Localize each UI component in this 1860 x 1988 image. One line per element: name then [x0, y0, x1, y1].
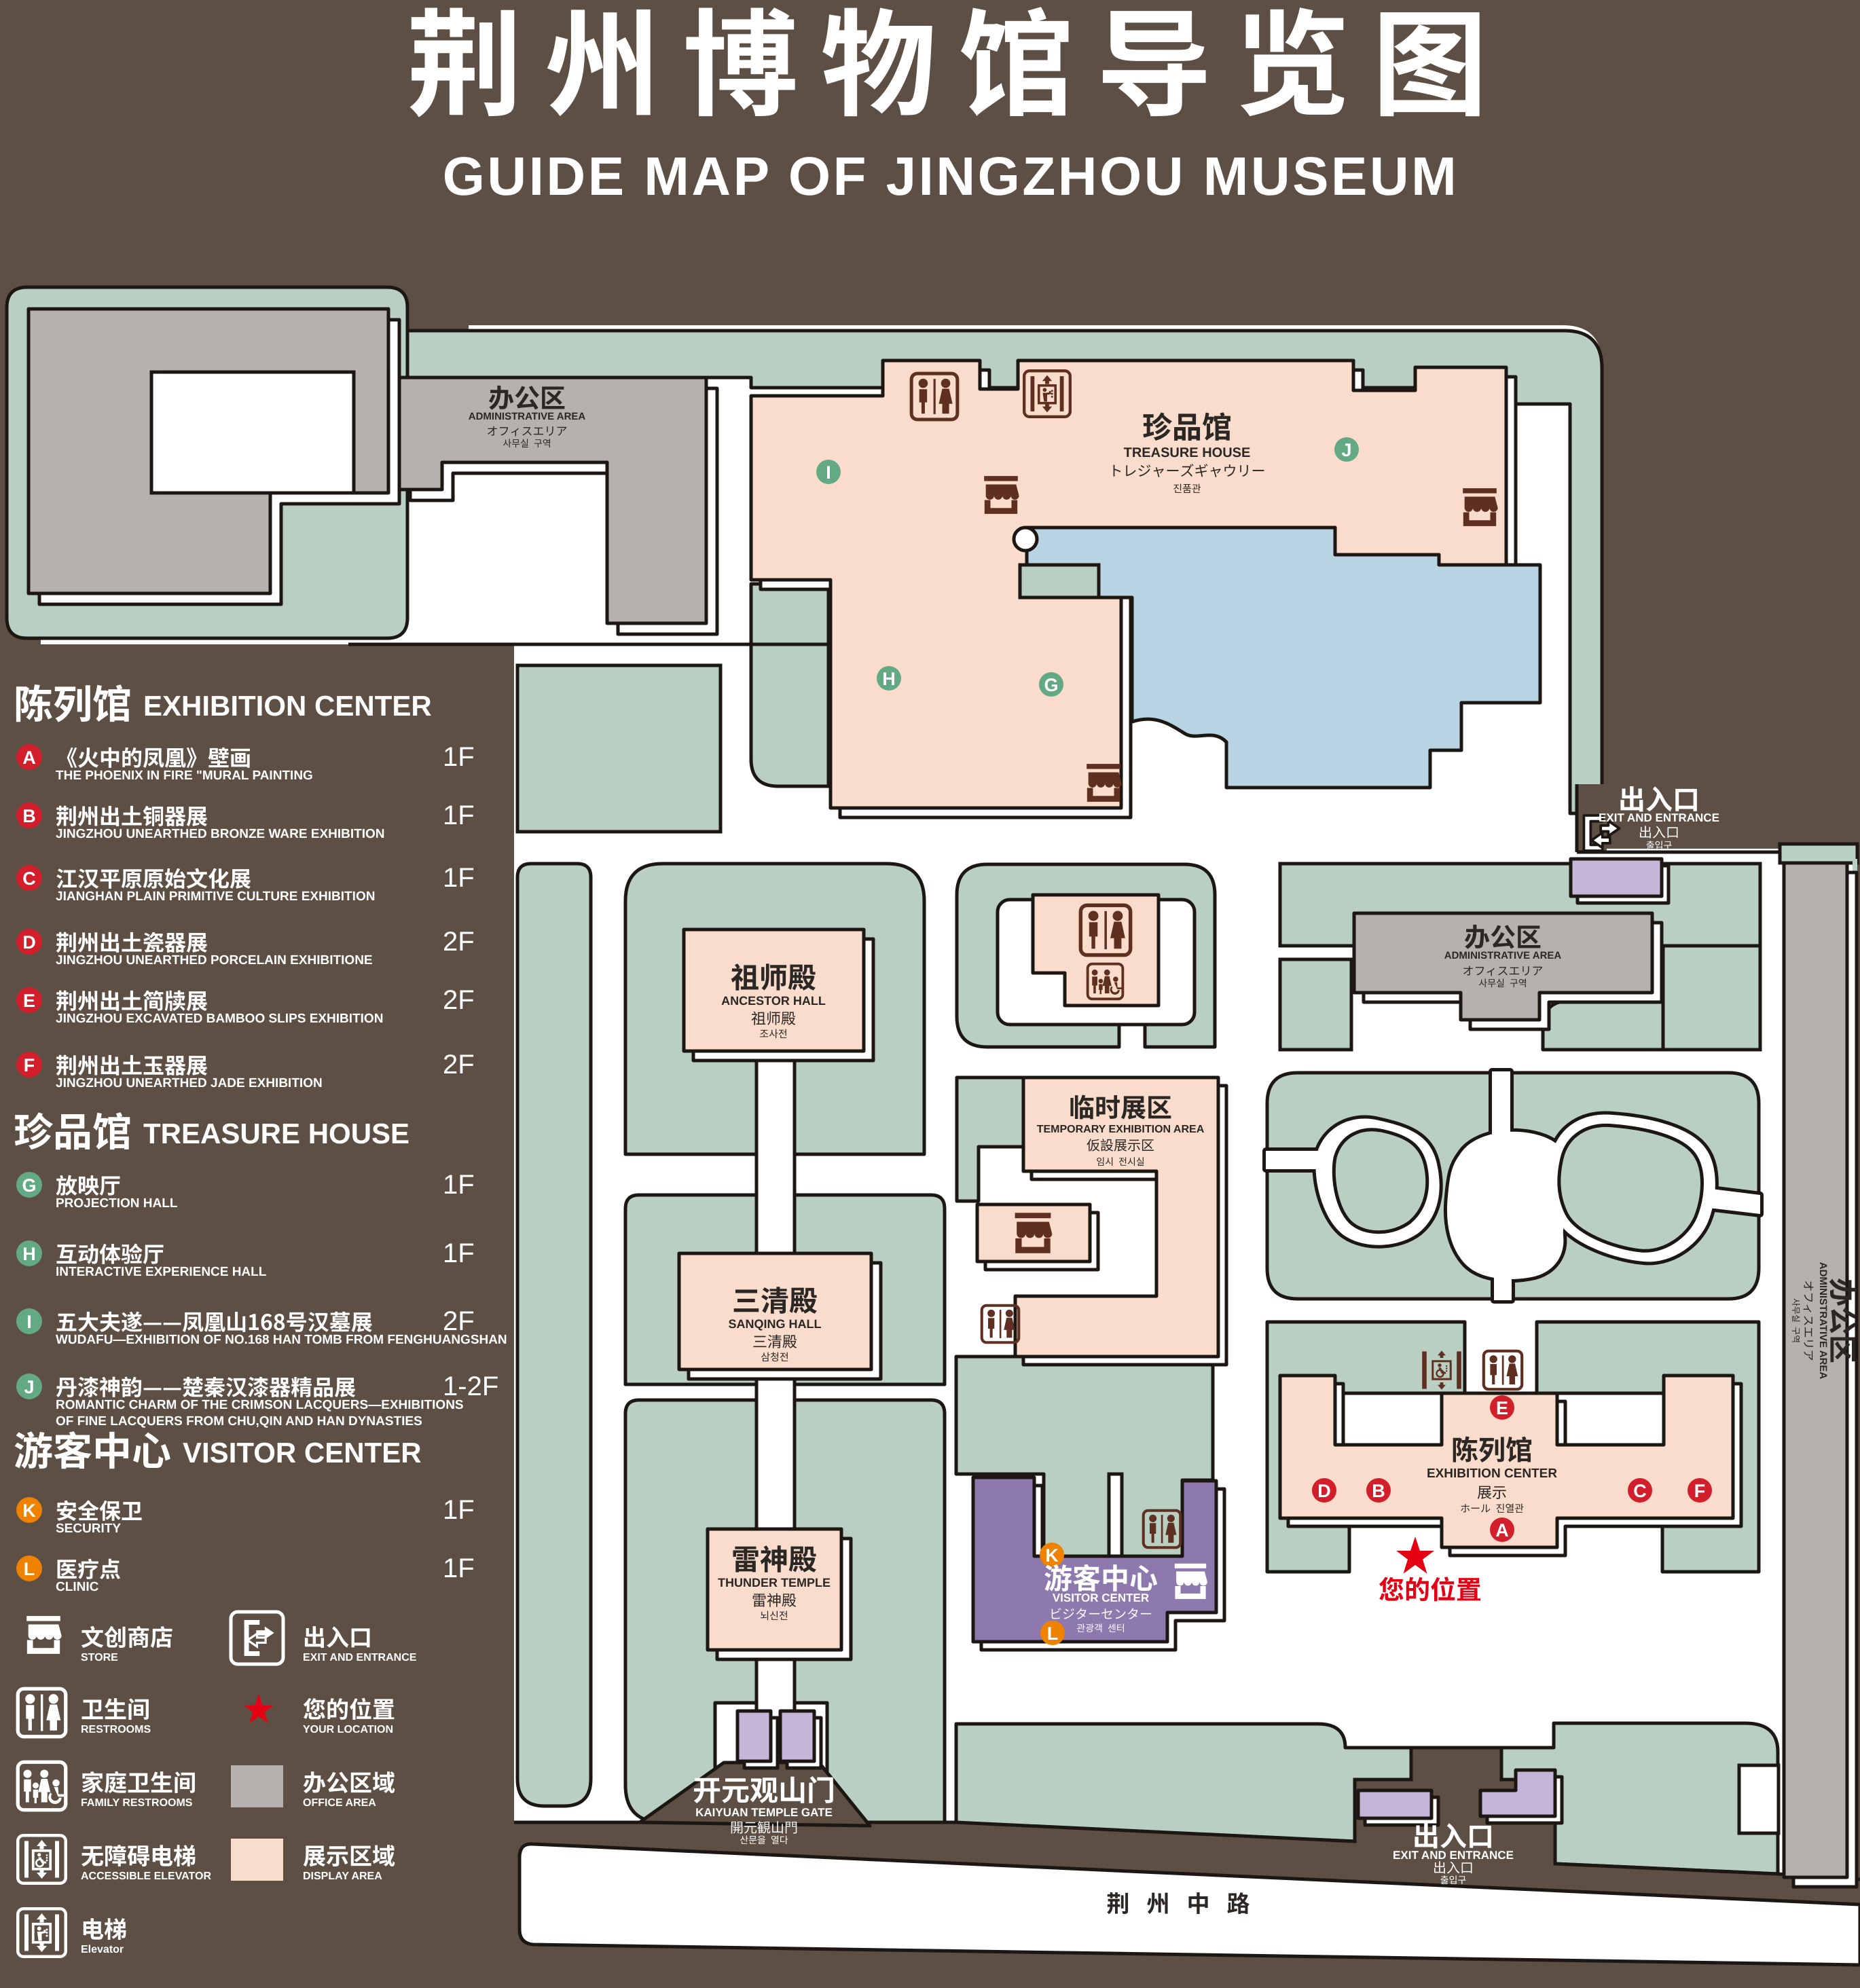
svg-text:1F: 1F — [443, 800, 475, 830]
svg-text:F: F — [1694, 1481, 1706, 1501]
svg-text:E: E — [1496, 1398, 1508, 1418]
svg-text:TREASURE HOUSE: TREASURE HOUSE — [143, 1118, 409, 1149]
svg-text:B: B — [22, 806, 36, 826]
svg-text:OF FINE LACQUERS FROM CHU,QIN: OF FINE LACQUERS FROM CHU,QIN AND HAN DY… — [56, 1414, 422, 1429]
svg-text:E: E — [23, 991, 35, 1011]
svg-text:1F: 1F — [443, 1170, 475, 1200]
svg-text:JINGZHOU EXCAVATED BAMBOO SLIP: JINGZHOU EXCAVATED BAMBOO SLIPS EXHIBITI… — [56, 1012, 383, 1026]
svg-text:I: I — [826, 462, 831, 483]
svg-text:H: H — [882, 669, 896, 689]
svg-text:D: D — [22, 932, 36, 953]
svg-text:THUNDER TEMPLE: THUNDER TEMPLE — [718, 1576, 831, 1589]
svg-text:WUDAFU—EXHIBITION OF NO.168 HA: WUDAFU—EXHIBITION OF NO.168 HAN TOMB FRO… — [56, 1333, 507, 1347]
svg-text:DISPLAY AREA: DISPLAY AREA — [303, 1871, 382, 1882]
svg-text:K: K — [1045, 1545, 1059, 1566]
svg-text:1F: 1F — [443, 742, 475, 772]
svg-text:EXIT AND ENTRANCE: EXIT AND ENTRANCE — [1599, 811, 1719, 824]
svg-text:EXIT AND ENTRANCE: EXIT AND ENTRANCE — [1393, 1849, 1514, 1862]
svg-text:ACCESSIBLE ELEVATOR: ACCESSIBLE ELEVATOR — [81, 1871, 211, 1882]
svg-text:VISITOR CENTER: VISITOR CENTER — [1053, 1591, 1149, 1604]
svg-text:L: L — [24, 1559, 35, 1579]
svg-text:G: G — [22, 1175, 36, 1196]
svg-text:ROMANTIC CHARM OF THE CRIMSON: ROMANTIC CHARM OF THE CRIMSON LACQUERS—E… — [56, 1398, 464, 1412]
svg-text:JIANGHAN PLAIN PRIMITIVE CULTU: JIANGHAN PLAIN PRIMITIVE CULTURE EXHIBIT… — [56, 889, 375, 904]
svg-text:GUIDE MAP OF JINGZHOU MUSEUM: GUIDE MAP OF JINGZHOU MUSEUM — [443, 146, 1459, 206]
svg-text:1F: 1F — [443, 1553, 475, 1583]
svg-text:2F: 2F — [443, 985, 475, 1015]
svg-text:STORE: STORE — [81, 1652, 118, 1663]
svg-text:1F: 1F — [443, 863, 475, 893]
svg-text:J: J — [24, 1377, 34, 1397]
svg-text:JINGZHOU UNEARTHED JADE EXHIBI: JINGZHOU UNEARTHED JADE EXHIBITION — [56, 1076, 323, 1090]
svg-text:SANQING HALL: SANQING HALL — [729, 1317, 822, 1331]
svg-text:THE PHOENIX IN FIRE "MURAL PAI: THE PHOENIX IN FIRE "MURAL PAINTING — [56, 769, 313, 783]
svg-text:A: A — [22, 748, 36, 768]
svg-text:EXHIBITION CENTER: EXHIBITION CENTER — [143, 690, 432, 722]
svg-text:JINGZHOU UNEARTHED BRONZE WARE: JINGZHOU UNEARTHED BRONZE WARE EXHIBITIO… — [56, 827, 385, 841]
svg-text:G: G — [1044, 675, 1058, 695]
svg-text:F: F — [24, 1055, 35, 1075]
svg-text:KAIYUAN TEMPLE GATE: KAIYUAN TEMPLE GATE — [695, 1806, 833, 1819]
svg-text:B: B — [1372, 1481, 1385, 1501]
svg-text:ADMINISTRATIVE AREA: ADMINISTRATIVE AREA — [1444, 950, 1562, 961]
svg-text:CLINIC: CLINIC — [56, 1580, 99, 1594]
svg-text:C: C — [22, 868, 36, 889]
svg-text:YOUR LOCATION: YOUR LOCATION — [303, 1724, 393, 1735]
svg-text:INTERACTIVE EXPERIENCE HALL: INTERACTIVE EXPERIENCE HALL — [56, 1265, 267, 1279]
svg-text:L: L — [1047, 1623, 1059, 1644]
svg-text:Elevator: Elevator — [81, 1944, 124, 1955]
svg-text:ADMINISTRATIVE AREA: ADMINISTRATIVE AREA — [1817, 1262, 1829, 1380]
svg-text:RESTROOMS: RESTROOMS — [81, 1724, 151, 1735]
svg-text:D: D — [1317, 1481, 1331, 1501]
svg-text:EXHIBITION CENTER: EXHIBITION CENTER — [1427, 1467, 1557, 1481]
svg-text:PROJECTION HALL: PROJECTION HALL — [56, 1196, 178, 1211]
svg-text:1-2F: 1-2F — [443, 1372, 498, 1401]
svg-text:1F: 1F — [443, 1238, 475, 1268]
svg-text:J: J — [1341, 440, 1351, 460]
svg-text:TREASURE HOUSE: TREASURE HOUSE — [1124, 445, 1251, 460]
svg-text:VISITOR CENTER: VISITOR CENTER — [183, 1437, 422, 1469]
svg-text:2F: 2F — [443, 927, 475, 957]
svg-text:H: H — [22, 1244, 36, 1264]
svg-text:ADMINISTRATIVE AREA: ADMINISTRATIVE AREA — [469, 411, 586, 422]
svg-text:ANCESTOR HALL: ANCESTOR HALL — [721, 994, 826, 1008]
svg-text:I: I — [26, 1312, 32, 1332]
svg-text:C: C — [1633, 1481, 1647, 1501]
svg-text:2F: 2F — [443, 1306, 475, 1336]
svg-text:2F: 2F — [443, 1050, 475, 1080]
svg-text:FAMILY RESTROOMS: FAMILY RESTROOMS — [81, 1797, 193, 1809]
svg-text:1F: 1F — [443, 1495, 475, 1525]
svg-text:OFFICE AREA: OFFICE AREA — [303, 1797, 376, 1809]
svg-text:A: A — [1495, 1520, 1509, 1541]
svg-text:JINGZHOU UNEARTHED PORCELAIN E: JINGZHOU UNEARTHED PORCELAIN EXHIBITIONE — [56, 953, 373, 968]
svg-text:SECURITY: SECURITY — [56, 1522, 121, 1536]
svg-text:EXIT AND ENTRANCE: EXIT AND ENTRANCE — [303, 1652, 417, 1663]
svg-text:K: K — [22, 1501, 36, 1521]
svg-text:TEMPORARY EXHIBITION AREA: TEMPORARY EXHIBITION AREA — [1037, 1124, 1205, 1135]
